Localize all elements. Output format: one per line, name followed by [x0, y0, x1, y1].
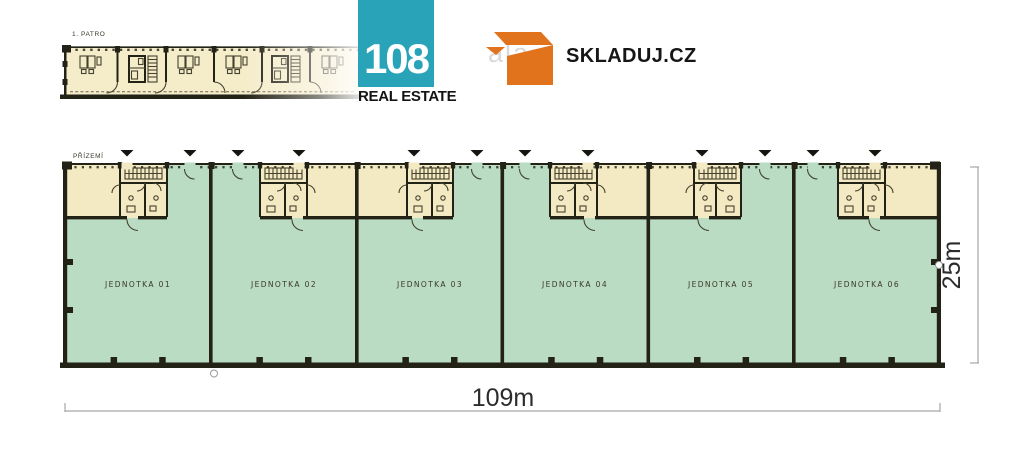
logo-108-caption: REAL ESTATE [358, 88, 456, 105]
unit-label: JEDNOTKA 01 [104, 280, 171, 289]
width-dimension: 109m [65, 384, 940, 412]
depth-dimension: 25m [938, 167, 979, 363]
open-box-icon [486, 26, 556, 88]
unit-label: JEDNOTKA 04 [541, 280, 608, 289]
floorplan-flyer: 1. PATRO [0, 0, 1024, 454]
plan-marker-circle [211, 370, 218, 377]
skladuj-wordmark: SKLADUJ.CZ [566, 45, 697, 68]
unit-label: JEDNOTKA 03 [396, 280, 463, 289]
entrance-markers [121, 150, 882, 157]
unit-label: JEDNOTKA 02 [250, 280, 317, 289]
ground-floor-plan: JEDNOTKA 01 JEDNOTKA 02 JEDNOTKA 03 JEDN… [60, 150, 945, 377]
width-dimension-label: 109m [472, 384, 535, 412]
upper-floor-label: 1. PATRO [72, 31, 105, 38]
unit-label: JEDNOTKA 06 [833, 280, 900, 289]
logo-108-number: 108 [364, 38, 428, 87]
ground-floor-label: PŘÍZEMÍ [73, 151, 104, 160]
depth-dimension-label: 25m [938, 241, 966, 290]
skladuj-logo [486, 26, 556, 88]
logo-108: 108 [358, 0, 434, 87]
upper-floor-plan [60, 45, 360, 99]
unit-label: JEDNOTKA 05 [687, 280, 754, 289]
